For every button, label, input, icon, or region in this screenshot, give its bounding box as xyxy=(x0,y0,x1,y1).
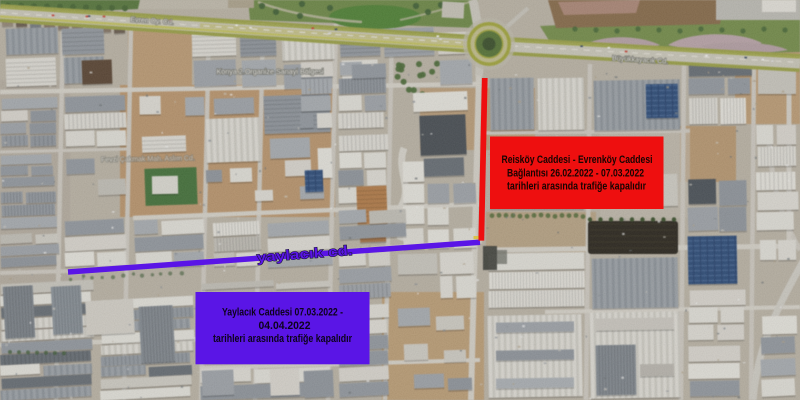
svg-text:tarihleri arasında trafiğe kap: tarihleri arasında trafiğe kapalıdır xyxy=(213,333,352,345)
svg-text:Bağlantısı 26.02.2022 - 07.03.: Bağlantısı 26.02.2022 - 07.03.2022 xyxy=(507,167,644,179)
svg-text:04.04.2022: 04.04.2022 xyxy=(259,320,311,332)
svg-text:Yaylacık Caddesi 07.03.2022 -: Yaylacık Caddesi 07.03.2022 - xyxy=(222,307,343,319)
svg-text:tarihleri arasında trafiğe kap: tarihleri arasında trafiğe kapalıdır xyxy=(507,181,646,193)
svg-text:Reisköy Caddesi - Evrenköy Cad: Reisköy Caddesi - Evrenköy Caddesi xyxy=(502,154,653,166)
